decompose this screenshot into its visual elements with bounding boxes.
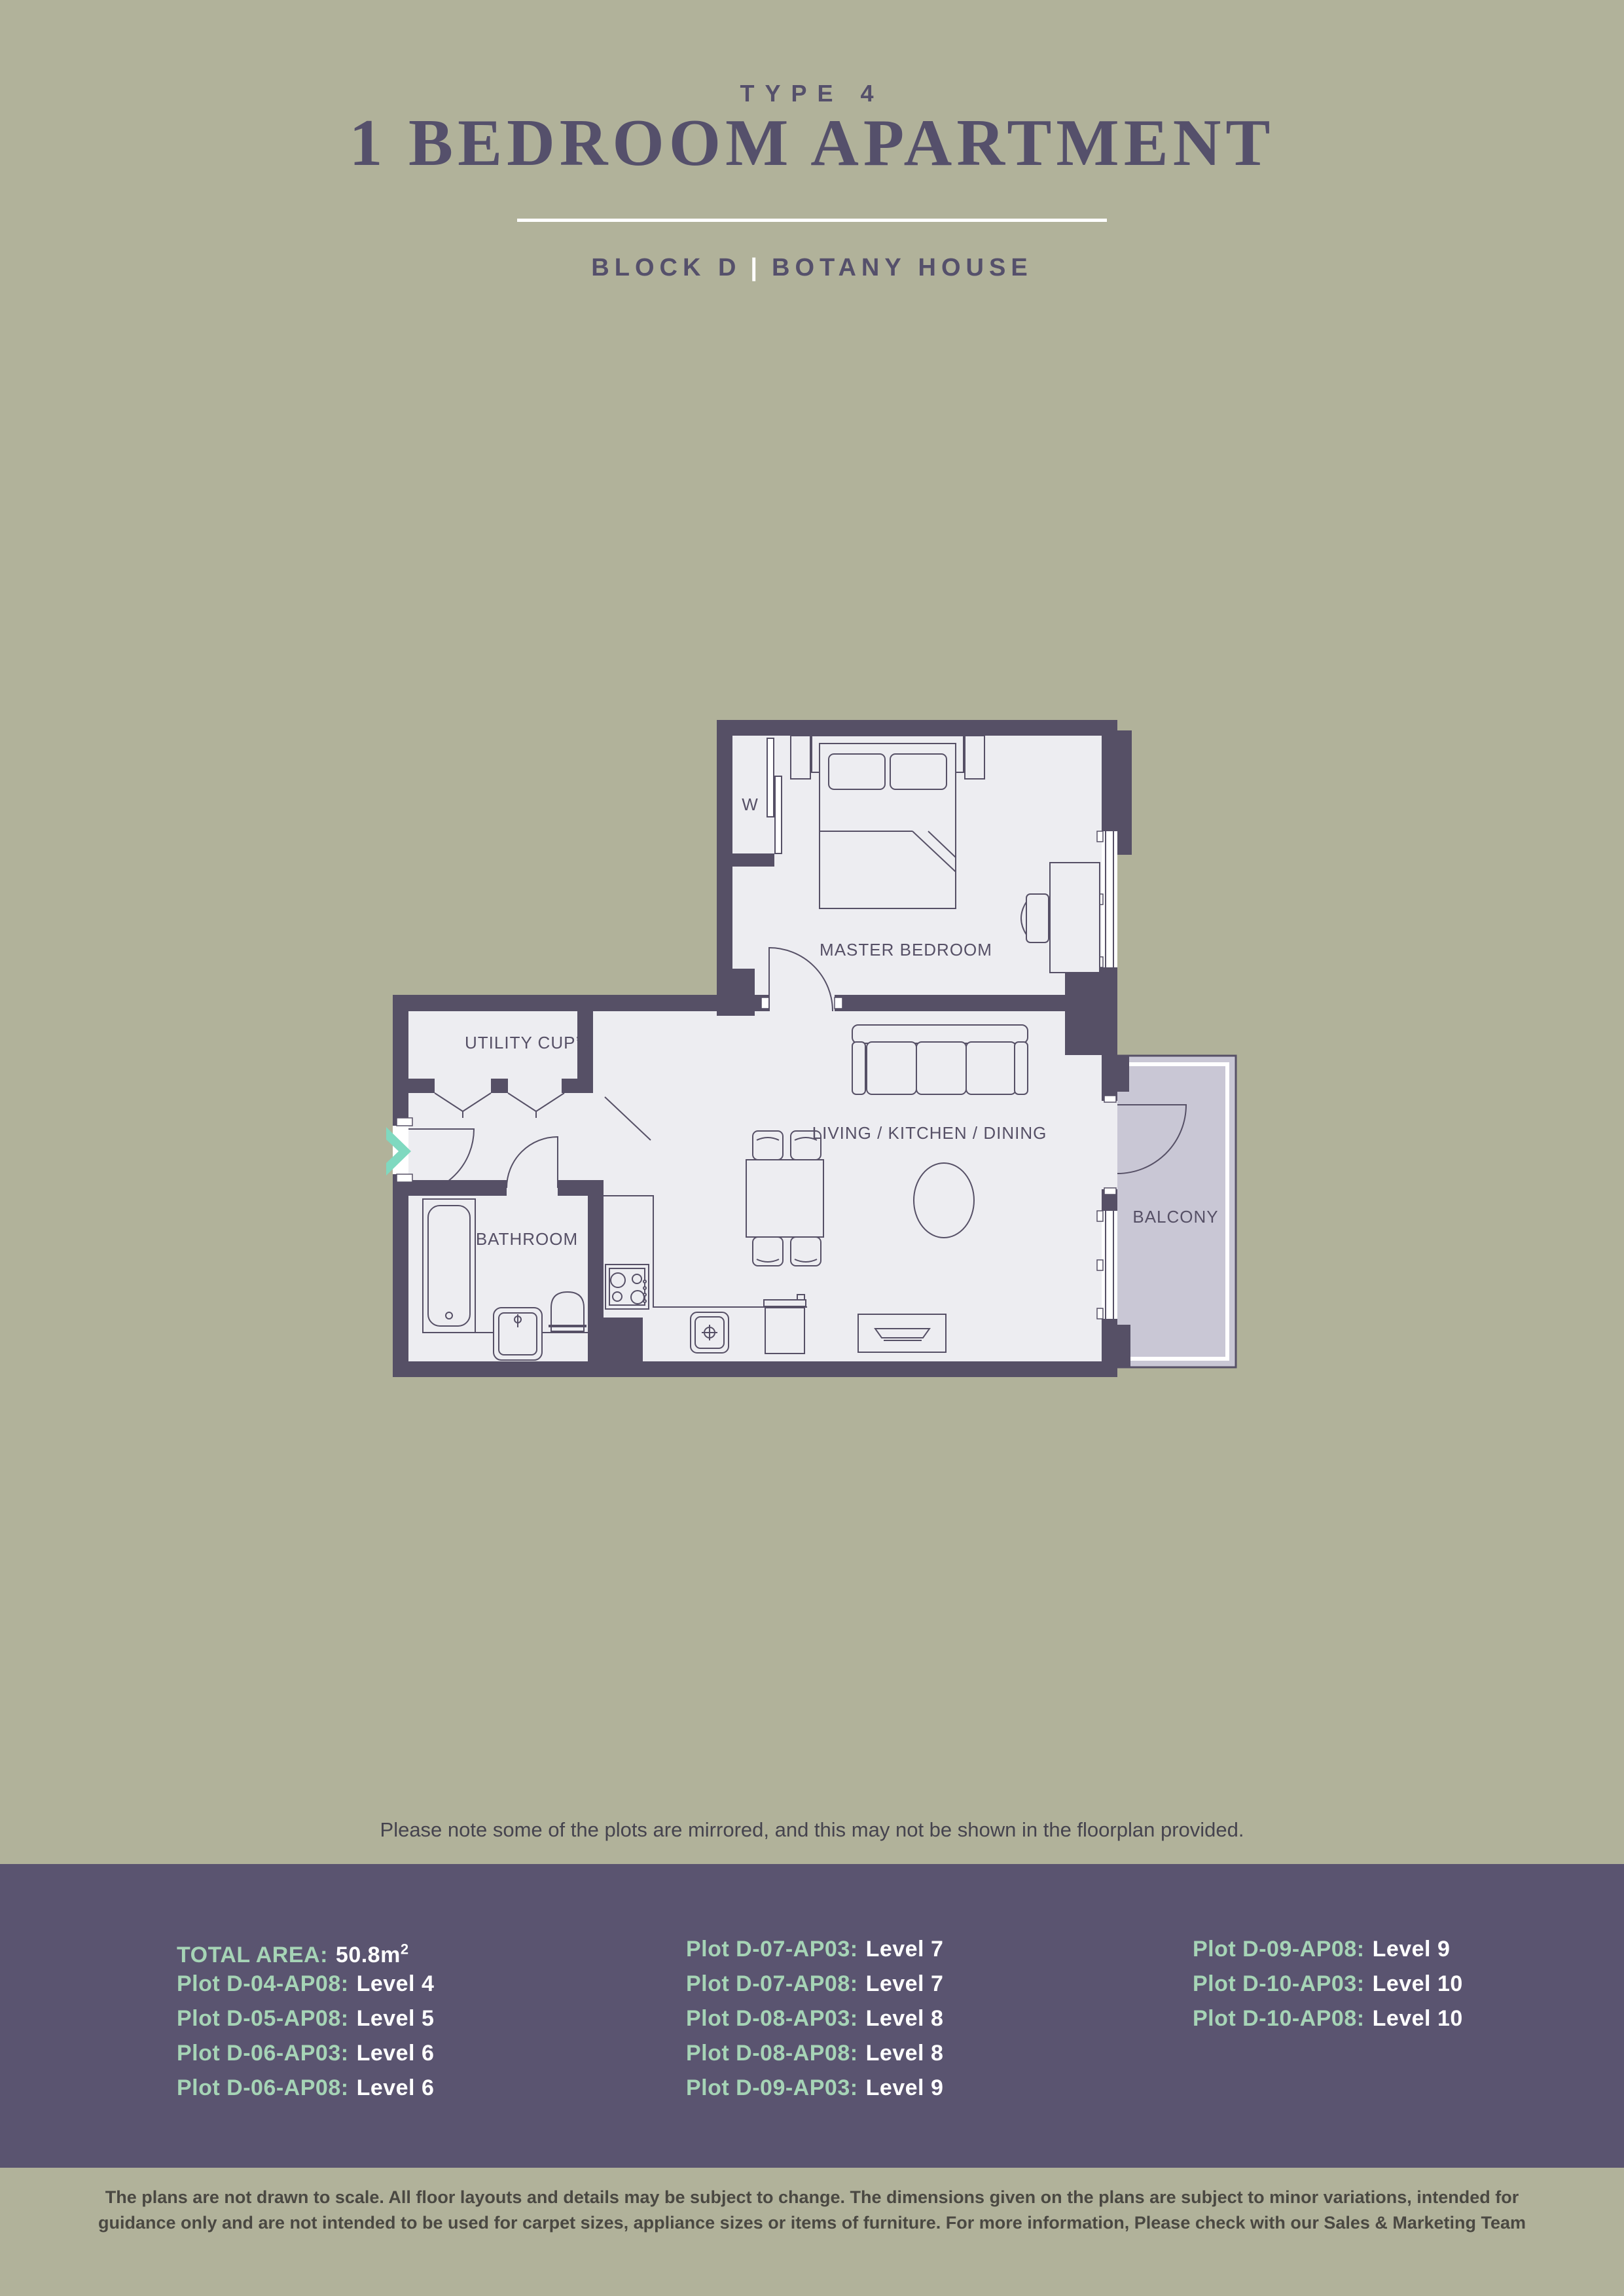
sofa-back xyxy=(852,1025,1028,1043)
mirror-note: Please note some of the plots are mirror… xyxy=(0,1818,1624,1842)
plot-row: Plot D-08-AP08:Level 8 xyxy=(686,2036,943,2071)
block-name: BLOCK D xyxy=(591,254,741,281)
utility-label: UTILITY CUP’D xyxy=(465,1033,593,1052)
page-title: 1 BEDROOM APARTMENT xyxy=(0,105,1624,181)
bathroom-label: BATHROOM xyxy=(476,1229,578,1249)
floorplan-svg: W MASTER BEDROOM UTILITY CUP’D BATHROOM … xyxy=(380,707,1257,1401)
footer: TOTAL AREA:50.8m2 Plot D-04-AP08:Level 4… xyxy=(0,1864,1624,2168)
pillow-right xyxy=(890,754,947,789)
plot-row: Plot D-05-AP08:Level 5 xyxy=(177,2001,434,2036)
footer-column-1: TOTAL AREA:50.8m2 Plot D-04-AP08:Level 4… xyxy=(177,1932,434,2106)
plot-row: Plot D-10-AP08:Level 10 xyxy=(1193,2001,1463,2036)
plot-row: Plot D-07-AP03:Level 7 xyxy=(686,1932,943,1967)
pipe-separator: | xyxy=(741,254,772,281)
title-divider xyxy=(517,219,1107,222)
footer-column-3: Plot D-09-AP08:Level 9 Plot D-10-AP03:Le… xyxy=(1193,1932,1463,2036)
total-area-label: TOTAL AREA: xyxy=(177,1943,328,1967)
plot-row: Plot D-09-AP03:Level 9 xyxy=(686,2071,943,2106)
nightstand-right xyxy=(965,736,984,779)
house-name: BOTANY HOUSE xyxy=(772,254,1033,281)
sofa-cushion-3 xyxy=(966,1042,1016,1094)
plot-row: Plot D-07-AP08:Level 7 xyxy=(686,1967,943,2001)
block-subtitle: BLOCK D|BOTANY HOUSE xyxy=(0,254,1624,282)
floorplan: W MASTER BEDROOM UTILITY CUP’D BATHROOM … xyxy=(380,707,1257,1401)
dresser-icon xyxy=(1050,863,1100,973)
disclaimer-line-2: guidance only and are not intended to be… xyxy=(0,2210,1624,2236)
sofa-arm-left xyxy=(852,1042,865,1094)
total-area-value: 50.8m2 xyxy=(336,1943,409,1967)
pillow-left xyxy=(829,754,885,789)
desk-chair xyxy=(1026,894,1049,942)
total-area-row: TOTAL AREA:50.8m2 xyxy=(177,1932,434,1967)
type-label: TYPE 4 xyxy=(0,80,1624,107)
plot-row: Plot D-06-AP03:Level 6 xyxy=(177,2036,434,2071)
brochure-page: TYPE 4 1 BEDROOM APARTMENT BLOCK D|BOTAN… xyxy=(0,0,1624,2296)
sofa-cushion-1 xyxy=(867,1042,916,1094)
plot-row: Plot D-04-AP08:Level 4 xyxy=(177,1967,434,2001)
plot-row: Plot D-09-AP08:Level 9 xyxy=(1193,1932,1463,1967)
plot-row: Plot D-10-AP03:Level 10 xyxy=(1193,1967,1463,2001)
plot-row: Plot D-08-AP03:Level 8 xyxy=(686,2001,943,2036)
disclaimer: The plans are not drawn to scale. All fl… xyxy=(0,2185,1624,2236)
living-label: LIVING / KITCHEN / DINING xyxy=(812,1123,1047,1143)
dining-table-icon xyxy=(746,1160,823,1237)
disclaimer-line-1: The plans are not drawn to scale. All fl… xyxy=(0,2185,1624,2210)
footer-column-2: Plot D-07-AP03:Level 7 Plot D-07-AP08:Le… xyxy=(686,1932,943,2106)
master-bedroom-label: MASTER BEDROOM xyxy=(820,940,992,960)
nightstand-left xyxy=(791,736,810,779)
appliance-icon xyxy=(765,1308,804,1354)
sofa-cushion-2 xyxy=(916,1042,966,1094)
dining-chair-1 xyxy=(753,1131,783,1160)
tv-unit xyxy=(858,1314,946,1352)
plot-row: Plot D-06-AP08:Level 6 xyxy=(177,2071,434,2106)
sofa-arm-right xyxy=(1015,1042,1028,1094)
balcony-label: BALCONY xyxy=(1132,1207,1218,1227)
wardrobe-label: W xyxy=(742,795,759,814)
